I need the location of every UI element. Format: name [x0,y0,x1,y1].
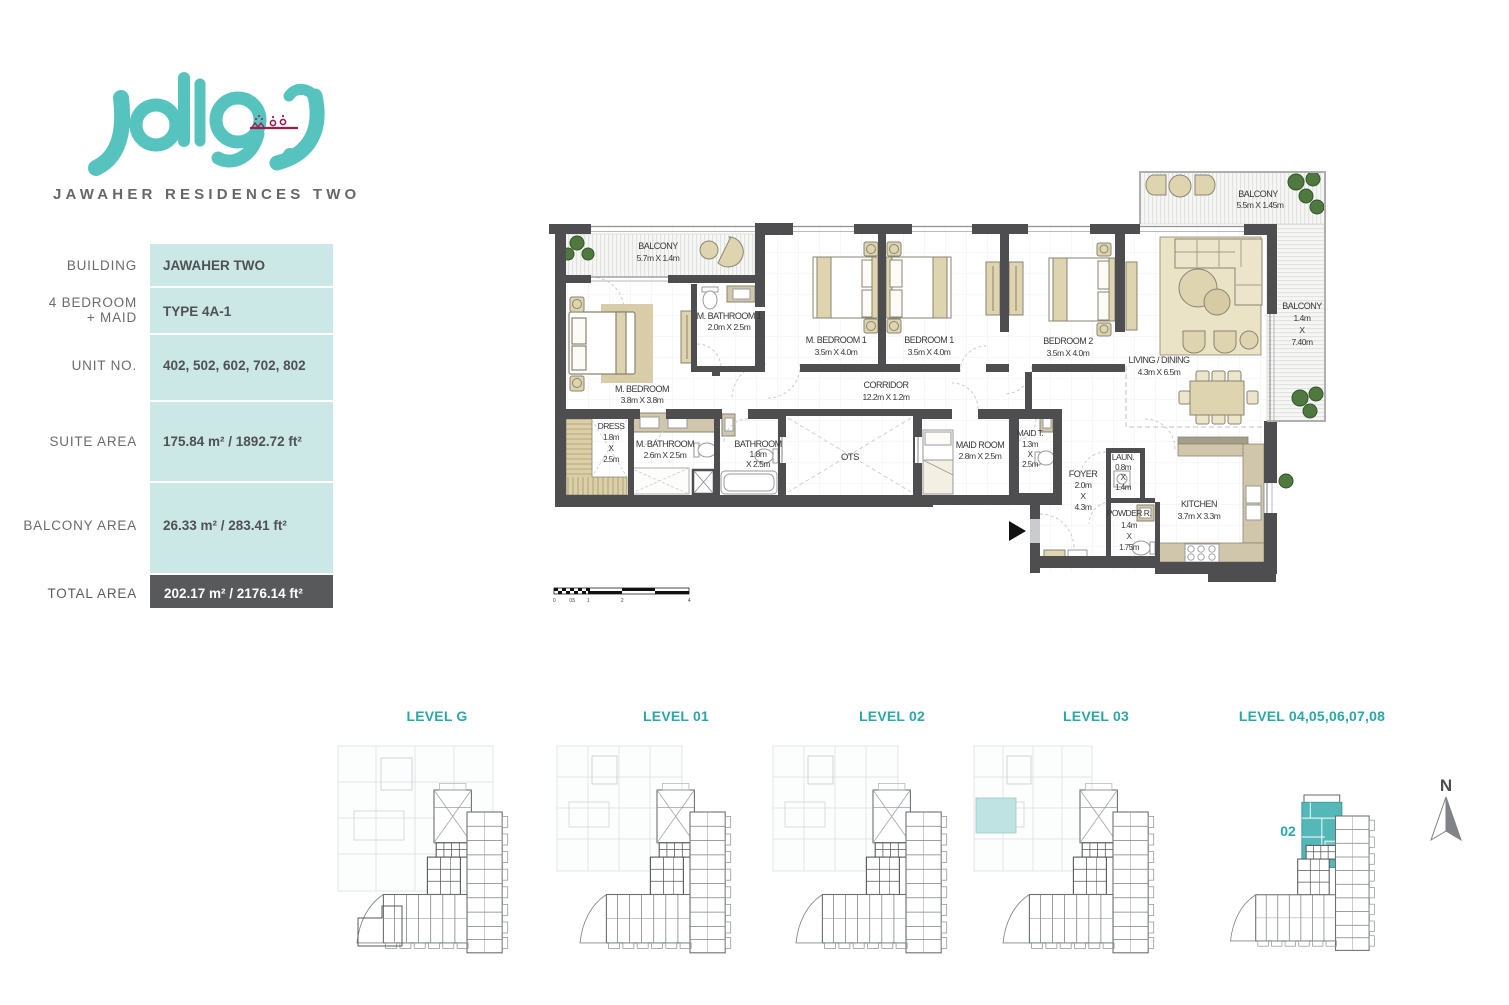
svg-text:X: X [1299,325,1305,335]
svg-text:7.40m: 7.40m [1291,337,1313,347]
svg-text:M. BATHROOM 1: M. BATHROOM 1 [697,311,762,321]
svg-text:KITCHEN: KITCHEN [1181,499,1217,509]
svg-text:X 2.5m: X 2.5m [746,459,770,469]
svg-text:LIVING / DINING: LIVING / DINING [1128,355,1190,365]
svg-text:1.75m: 1.75m [1119,543,1140,552]
svg-text:3.5m X 4.0m: 3.5m X 4.0m [1047,348,1090,358]
svg-text:1.8m: 1.8m [750,449,767,459]
svg-text:POWDER R.: POWDER R. [1107,508,1152,518]
svg-text:LAUN.: LAUN. [1112,452,1135,462]
svg-text:4.3m: 4.3m [1075,502,1092,512]
svg-text:1.4m: 1.4m [1121,521,1138,530]
svg-text:BEDROOM 2: BEDROOM 2 [1043,336,1093,346]
svg-text:MAID ROOM: MAID ROOM [956,440,1005,450]
svg-text:0: 0 [553,598,556,604]
svg-text:3.7m X 3.3m: 3.7m X 3.3m [1178,511,1221,521]
svg-text:M. BEDROOM: M. BEDROOM [615,384,669,394]
svg-text:CORRIDOR: CORRIDOR [864,380,910,390]
svg-text:3.5m X 4.0m: 3.5m X 4.0m [815,347,858,357]
svg-text:2: 2 [621,598,624,604]
svg-text:1: 1 [587,598,590,604]
svg-text:BALCONY: BALCONY [1282,301,1322,311]
svg-text:3.8m X 3.8m: 3.8m X 3.8m [621,395,664,405]
svg-text:BALCONY: BALCONY [1238,189,1278,199]
svg-text:MAID T.: MAID T. [1017,428,1044,438]
svg-text:5.7m X 1.4m: 5.7m X 1.4m [637,253,680,263]
svg-text:02: 02 [1280,823,1296,839]
svg-text:2.0m: 2.0m [1075,480,1092,490]
svg-text:BALCONY: BALCONY [638,241,678,251]
svg-text:2.5m: 2.5m [603,455,620,464]
svg-text:M. BEDROOM 1: M. BEDROOM 1 [806,335,867,345]
svg-text:OTS: OTS [841,452,859,463]
svg-text:BATHROOM: BATHROOM [734,439,781,449]
svg-text:4.3m X 6.5m: 4.3m X 6.5m [1138,367,1181,377]
svg-text:1.3m: 1.3m [1022,440,1039,449]
svg-text:4: 4 [688,598,691,604]
svg-text:X: X [1080,491,1086,501]
svg-text:N: N [1440,776,1452,795]
svg-text:3.5m X 4.0m: 3.5m X 4.0m [908,347,951,357]
svg-text:2.6m X 2.5m: 2.6m X 2.5m [644,450,687,460]
svg-text:12.2m X 1.2m: 12.2m X 1.2m [863,392,910,402]
svg-text:M. BATHROOM: M. BATHROOM [636,439,694,449]
svg-text:FOYER: FOYER [1069,469,1099,479]
svg-text:BEDROOM 1: BEDROOM 1 [904,335,954,345]
svg-text:2.5m: 2.5m [1022,460,1039,469]
svg-text:2.0m X 2.5m: 2.0m X 2.5m [708,322,751,332]
svg-text:DRESS: DRESS [598,421,626,431]
svg-text:0.8m: 0.8m [1115,463,1132,472]
svg-text:5.5m X 1.45m: 5.5m X 1.45m [1237,200,1284,210]
svg-text:1.8m: 1.8m [603,433,620,442]
svg-text:2.8m X 2.5m: 2.8m X 2.5m [959,451,1002,461]
svg-text:0.5: 0.5 [569,598,575,604]
svg-text:1.4m: 1.4m [1115,483,1132,492]
svg-text:1.4m: 1.4m [1294,313,1311,323]
